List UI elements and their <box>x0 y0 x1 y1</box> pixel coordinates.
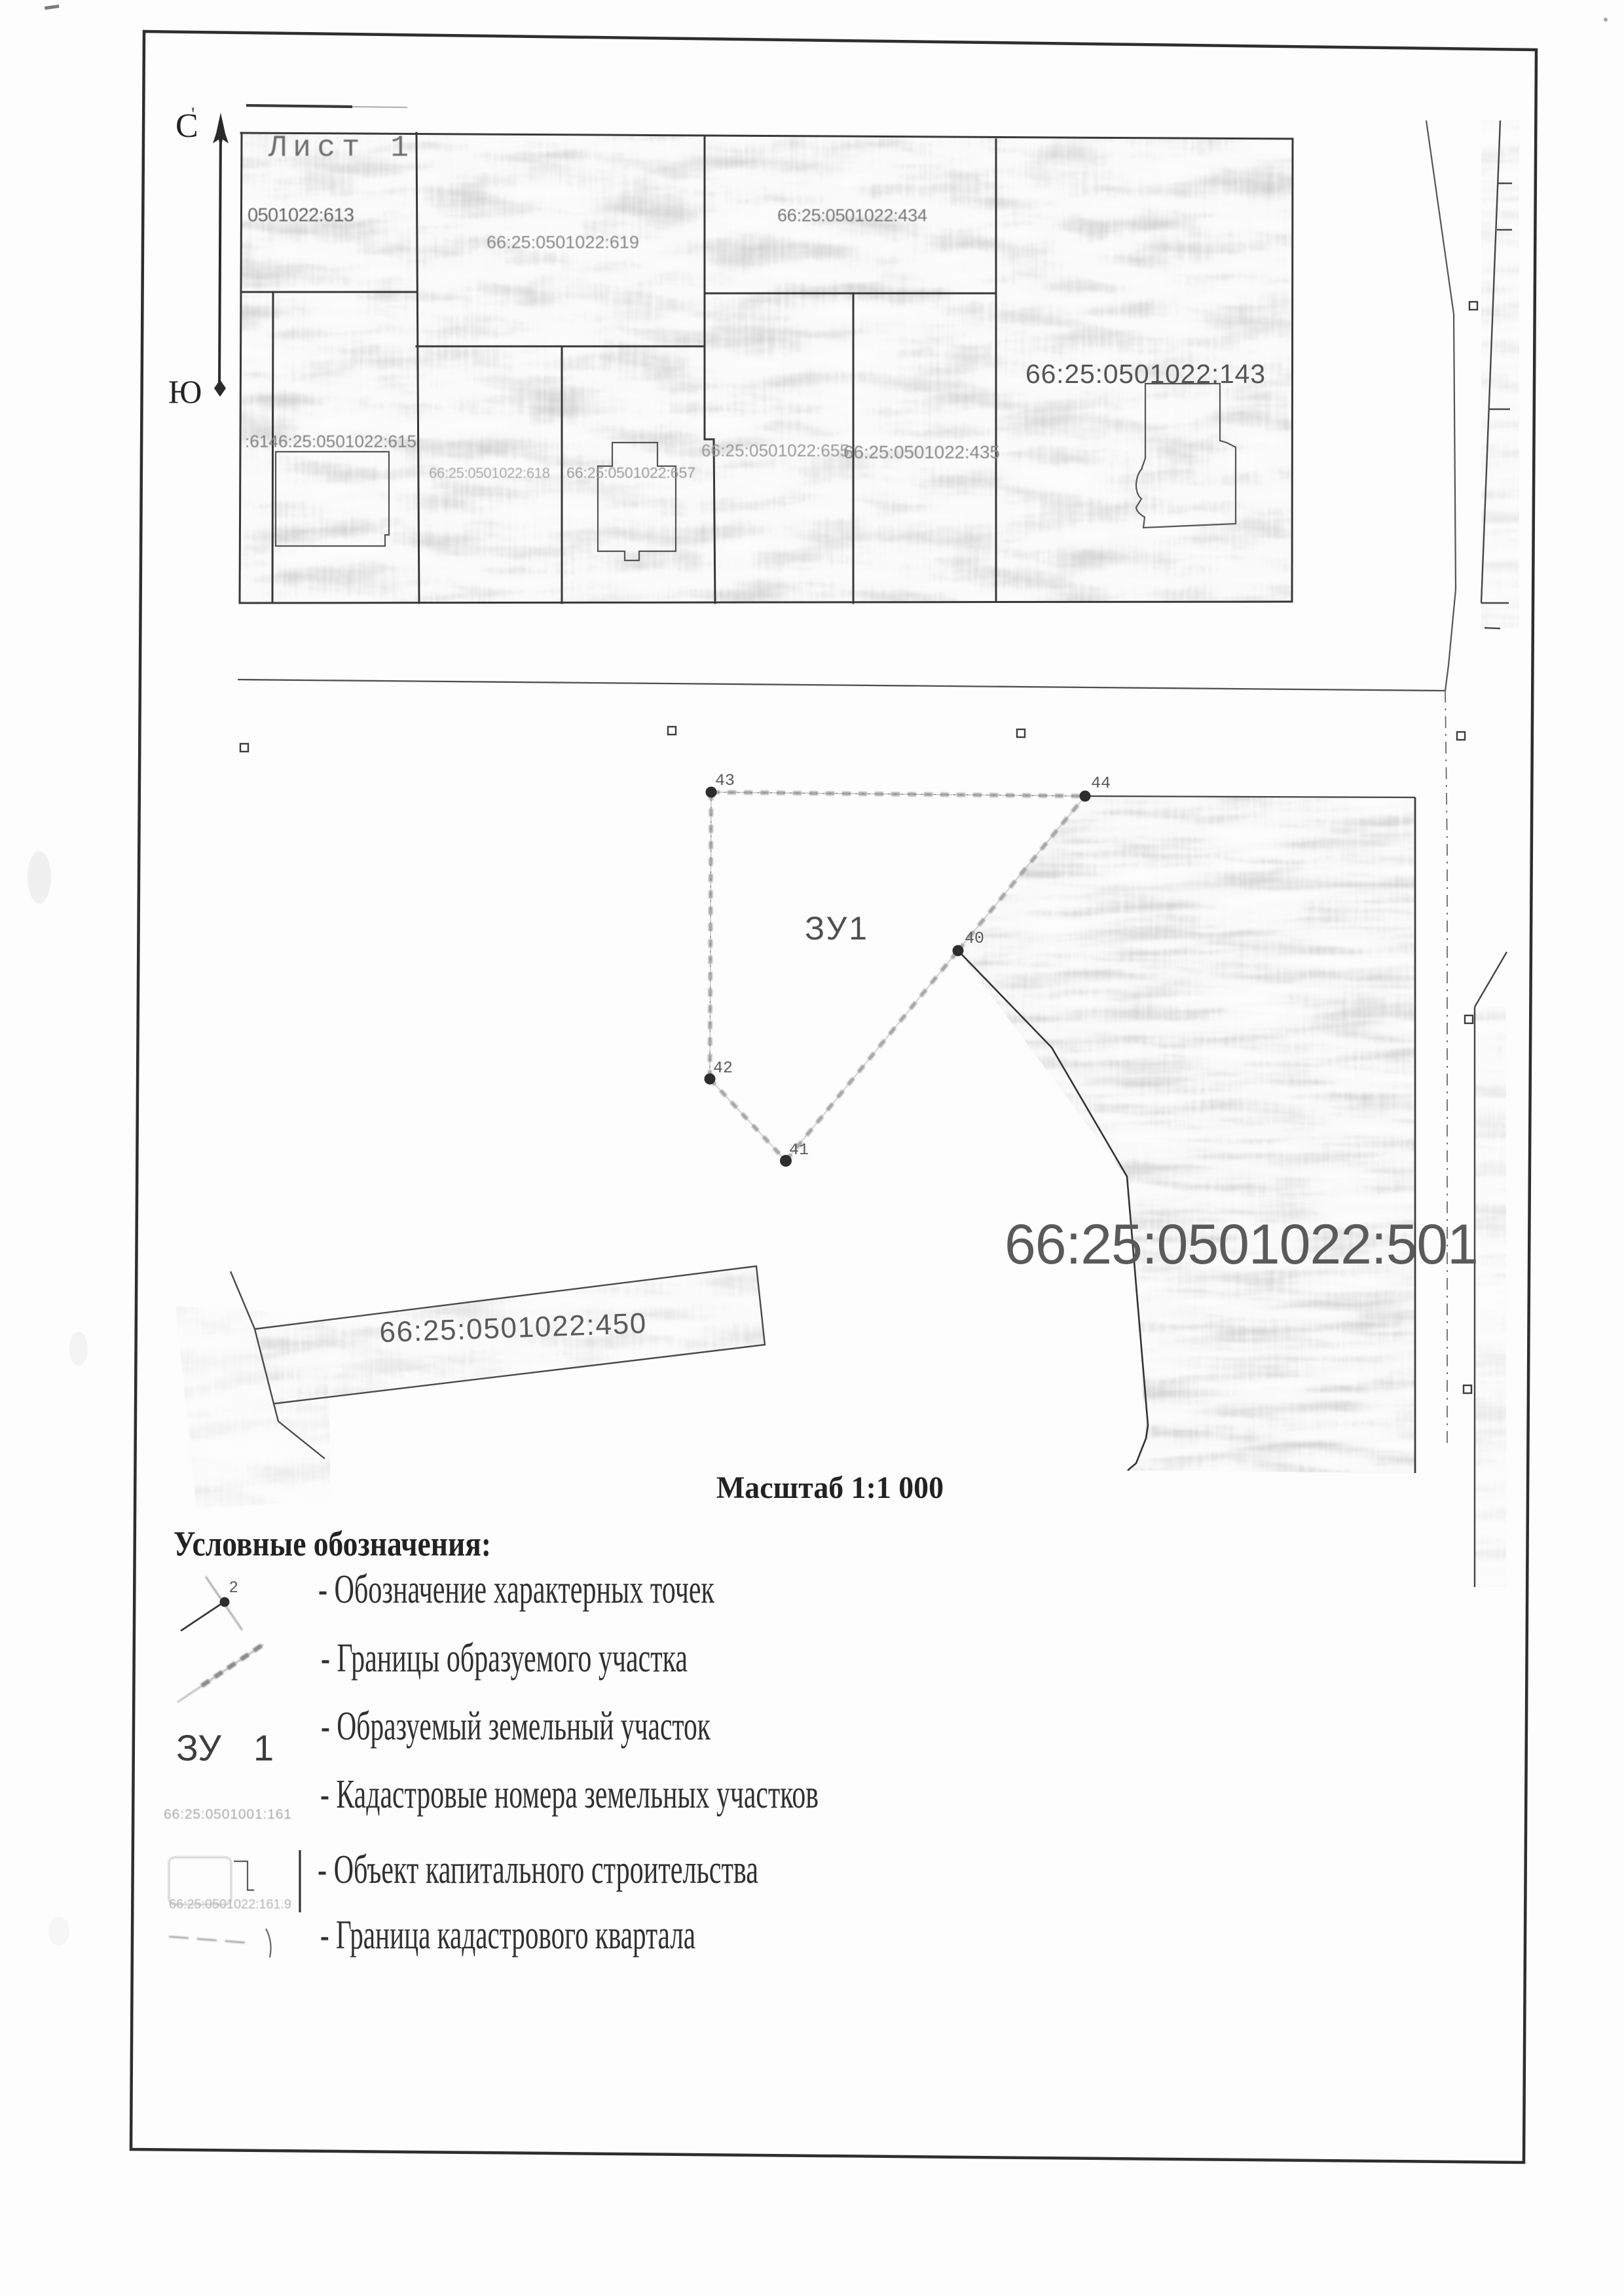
svg-text:40: 40 <box>965 929 984 948</box>
svg-text:42: 42 <box>713 1059 733 1078</box>
svg-text:66:25:0501001:161: 66:25:0501001:161 <box>164 1807 291 1822</box>
svg-text:41: 41 <box>789 1140 809 1159</box>
svg-text:': ' <box>191 103 194 125</box>
svg-text:66:25:0501022:618: 66:25:0501022:618 <box>429 465 550 481</box>
svg-text:- Кадастровые номера земельных: - Кадастровые номера земельных участков <box>320 1772 819 1817</box>
svg-text:66:25:0501022:655: 66:25:0501022:655 <box>701 441 849 460</box>
svg-text:- Объект капитального строител: - Объект капитального строительства <box>318 1848 758 1892</box>
svg-text:66:25:0501022:435: 66:25:0501022:435 <box>843 442 1000 462</box>
svg-text:66:25:0501022:657: 66:25:0501022:657 <box>566 464 695 481</box>
svg-text::6146:25:0501022:615: :6146:25:0501022:615 <box>245 431 416 451</box>
svg-text:Масштаб 1:1 000: Масштаб 1:1 000 <box>716 1470 944 1505</box>
svg-text:66:25:0501022:143: 66:25:0501022:143 <box>1025 359 1265 389</box>
svg-text:- Граница кадастрового квартал: - Граница кадастрового квартала <box>320 1913 695 1958</box>
svg-text:44: 44 <box>1091 774 1111 793</box>
svg-text:Условные обозначения:: Условные обозначения: <box>174 1524 491 1563</box>
svg-text:2: 2 <box>229 1578 238 1596</box>
svg-text:0501022:613: 0501022:613 <box>248 205 354 226</box>
svg-text:66:25:0501022:434: 66:25:0501022:434 <box>777 206 927 225</box>
svg-text:Ю: Ю <box>168 373 202 410</box>
svg-text:- Образуемый земельный участок: - Образуемый земельный участок <box>321 1704 711 1749</box>
svg-text:66:25:0501022:619: 66:25:0501022:619 <box>487 232 639 252</box>
svg-text:ЗУ: ЗУ <box>176 1727 221 1768</box>
svg-text:С: С <box>175 107 198 145</box>
svg-text:- Границы образуемого участка: - Границы образуемого участка <box>321 1636 688 1681</box>
svg-text:66:25:0501022:501: 66:25:0501022:501 <box>1005 1213 1479 1276</box>
svg-text:43: 43 <box>715 771 735 790</box>
svg-text:66:25:0501022:161.9: 66:25:0501022:161.9 <box>169 1897 291 1912</box>
svg-text:ЗУ1: ЗУ1 <box>805 910 867 947</box>
svg-text:- Обозначение характерных точе: - Обозначение характерных точек <box>318 1567 715 1612</box>
svg-text:1: 1 <box>253 1727 274 1768</box>
